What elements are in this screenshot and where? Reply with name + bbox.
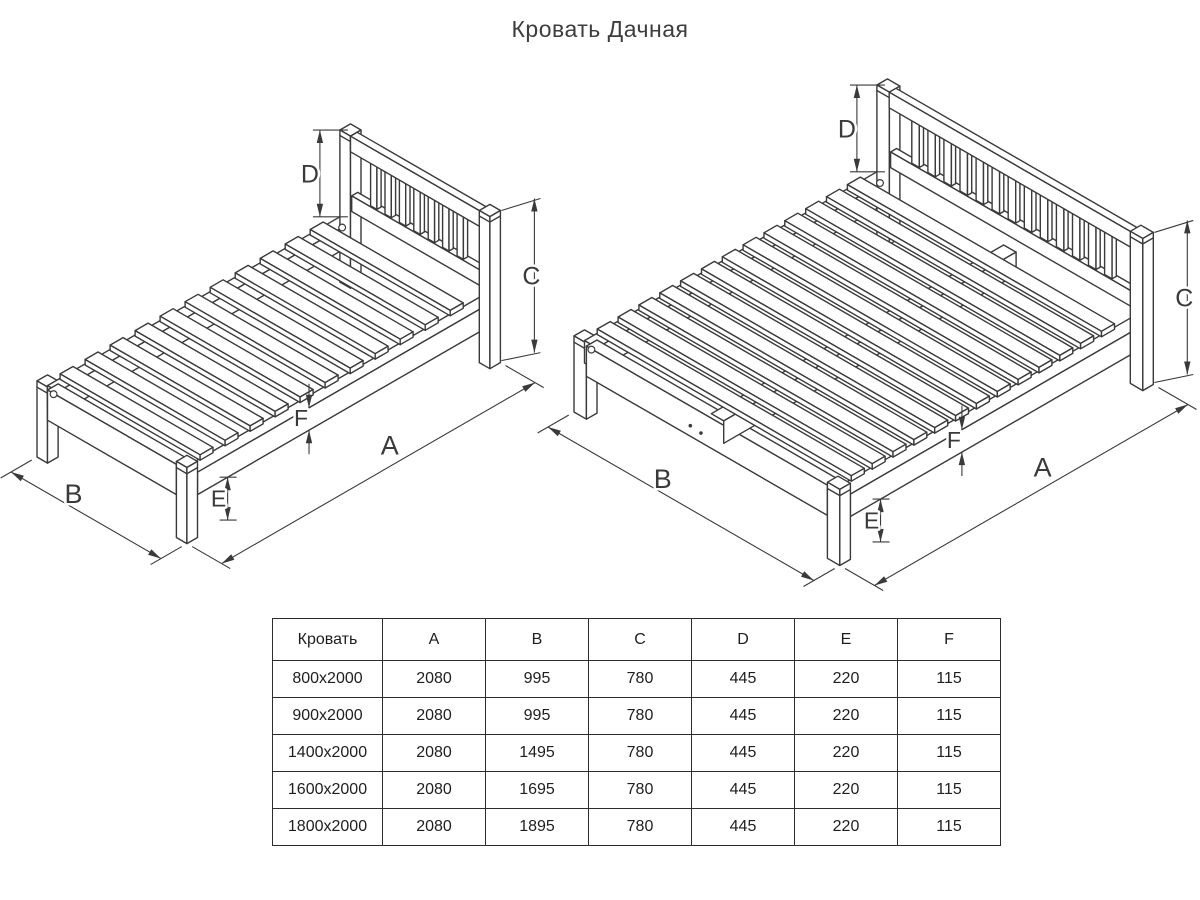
spindle-side <box>1112 233 1116 279</box>
table-cell: 1800x2000 <box>273 809 383 846</box>
dim-label-C: C <box>522 263 540 291</box>
spindle-front <box>1008 175 1016 223</box>
dim-label-B: B <box>654 464 672 494</box>
spindle-side <box>449 205 453 251</box>
spindle-front <box>928 129 935 177</box>
spindle-front <box>1040 194 1048 242</box>
table-cell: 445 <box>692 735 795 772</box>
spindle-front <box>944 138 952 186</box>
table-cell: 995 <box>486 661 589 698</box>
column-header: E <box>795 619 898 661</box>
table-cell: 115 <box>898 661 1001 698</box>
spindle-front <box>443 204 449 252</box>
dim-label-B: B <box>64 479 82 509</box>
table-row: 900x20002080995780445220115 <box>273 698 1001 735</box>
spindle-side <box>391 171 395 217</box>
column-header: F <box>898 619 1001 661</box>
table-cell: 115 <box>898 735 1001 772</box>
table-cell: 445 <box>692 698 795 735</box>
spindle-side <box>406 180 410 226</box>
arrowhead <box>522 383 535 392</box>
spindle-front <box>428 195 434 243</box>
spindle-side <box>1000 168 1004 214</box>
dim-label-D: D <box>838 115 856 143</box>
table-cell: 780 <box>589 661 692 698</box>
spindle-side <box>435 196 439 242</box>
arrowhead <box>531 340 537 353</box>
spindle-side <box>377 163 381 209</box>
arrowhead <box>317 130 323 143</box>
table-cell: 445 <box>692 661 795 698</box>
bed-technical-drawing: DCABEFDCABEF <box>0 0 1200 608</box>
spindle-side <box>968 149 972 195</box>
table-cell: 220 <box>795 698 898 735</box>
spindle-front <box>992 166 1000 214</box>
dim-label-E: E <box>211 486 226 512</box>
joint-circle <box>339 224 346 231</box>
table-cell: 780 <box>589 698 692 735</box>
spindle-front <box>371 162 377 210</box>
spindle-side <box>935 131 939 177</box>
spindle-side <box>1064 205 1068 251</box>
table-cell: 115 <box>898 698 1001 735</box>
table-cell: 115 <box>898 809 1001 846</box>
dim-label-E: E <box>864 508 879 534</box>
spindle-front <box>1056 203 1064 251</box>
table-row: 1400x200020801495780445220115 <box>273 735 1001 772</box>
spindle-front <box>960 147 968 195</box>
table-cell: 220 <box>795 735 898 772</box>
table-body: 800x20002080995780445220115900x200020809… <box>273 661 1001 846</box>
spindle-front <box>414 187 420 235</box>
table-cell: 780 <box>589 809 692 846</box>
dowel-dot <box>689 424 693 428</box>
column-header: B <box>486 619 589 661</box>
spindle-front <box>1073 212 1080 260</box>
column-header: D <box>692 619 795 661</box>
table-cell: 445 <box>692 809 795 846</box>
arrowhead <box>222 554 235 563</box>
head-post-near-front <box>1130 231 1143 390</box>
head-post-near-front <box>479 211 490 369</box>
single-bed-drawing: DCABEF <box>1 124 544 569</box>
spindle-front <box>912 119 920 167</box>
table-row: 1600x200020801695780445220115 <box>273 772 1001 809</box>
table-cell: 220 <box>795 661 898 698</box>
table-row: 1800x200020801895780445220115 <box>273 809 1001 846</box>
spindle-front <box>1105 231 1113 279</box>
table-header-row: КроватьABCDEF <box>273 619 1001 661</box>
table-cell: 1695 <box>486 772 589 809</box>
table-row: 800x20002080995780445220115 <box>273 661 1001 698</box>
arrowhead <box>531 199 537 212</box>
spindle-side <box>951 140 955 186</box>
table-cell: 220 <box>795 772 898 809</box>
table-cell: 2080 <box>383 772 486 809</box>
table-cell: 1600x2000 <box>273 772 383 809</box>
dim-label-A: A <box>1034 453 1052 483</box>
table-cell: 780 <box>589 772 692 809</box>
spindle-front <box>399 179 405 227</box>
table-cell: 445 <box>692 772 795 809</box>
spindle-side <box>919 121 923 167</box>
spindle-front <box>1089 221 1097 269</box>
spindle-side <box>1016 177 1020 223</box>
spindle-side <box>463 213 467 259</box>
arrowhead <box>148 549 161 558</box>
spindle-side <box>420 188 424 234</box>
dim-label-F: F <box>947 427 961 453</box>
column-header: Кровать <box>273 619 383 661</box>
table-header: КроватьABCDEF <box>273 619 1001 661</box>
arrowhead <box>854 85 860 98</box>
joint-circle <box>588 346 595 353</box>
far-foot-leg-front <box>37 381 48 463</box>
dim-label-C: C <box>1175 285 1193 313</box>
table-cell: 1895 <box>486 809 589 846</box>
column-header: C <box>589 619 692 661</box>
spindle-front <box>385 170 391 218</box>
spindle-front <box>1024 184 1031 232</box>
spindle-front <box>976 156 983 204</box>
spindle-side <box>1080 214 1084 260</box>
table-cell: 900x2000 <box>273 698 383 735</box>
slats <box>597 177 1114 481</box>
table-cell: 220 <box>795 809 898 846</box>
arrowhead <box>1175 405 1188 414</box>
dowel-dot <box>699 431 703 435</box>
table-cell: 2080 <box>383 735 486 772</box>
arrowhead <box>11 472 24 481</box>
dim-label-A: A <box>381 431 399 461</box>
near-foot-leg-side <box>187 461 198 543</box>
spindle-side <box>1032 186 1036 232</box>
arrowhead <box>875 576 888 585</box>
arrowhead <box>801 571 814 580</box>
arrowhead <box>854 159 860 172</box>
near-foot-leg-side <box>840 483 851 565</box>
double-bed-drawing: DCABEF <box>538 79 1197 591</box>
table-cell: 1400x2000 <box>273 735 383 772</box>
table-cell: 1495 <box>486 735 589 772</box>
table-cell: 115 <box>898 772 1001 809</box>
head-post-near-side <box>1143 232 1154 390</box>
table-cell: 2080 <box>383 661 486 698</box>
joint-circle <box>50 391 57 398</box>
table-cell: 2080 <box>383 809 486 846</box>
arrowhead <box>317 204 323 217</box>
table-cell: 780 <box>589 735 692 772</box>
arrowhead <box>1184 362 1190 375</box>
dim-label-F: F <box>294 405 308 431</box>
column-header: A <box>383 619 486 661</box>
arrowhead <box>1184 220 1190 233</box>
head-post-near-side <box>490 211 501 369</box>
table-cell: 995 <box>486 698 589 735</box>
near-foot-leg-front <box>176 461 187 543</box>
dimensions-table: КроватьABCDEF 800x2000208099578044522011… <box>272 618 1001 846</box>
table-cell: 2080 <box>383 698 486 735</box>
arrowhead <box>548 427 561 436</box>
table-cell: 800x2000 <box>273 661 383 698</box>
spindle-side <box>1048 195 1052 241</box>
spindle-side <box>1096 223 1100 269</box>
spindle-side <box>984 158 988 204</box>
joint-circle <box>877 180 884 187</box>
dim-label-D: D <box>301 160 319 188</box>
spindle-front <box>457 212 463 259</box>
